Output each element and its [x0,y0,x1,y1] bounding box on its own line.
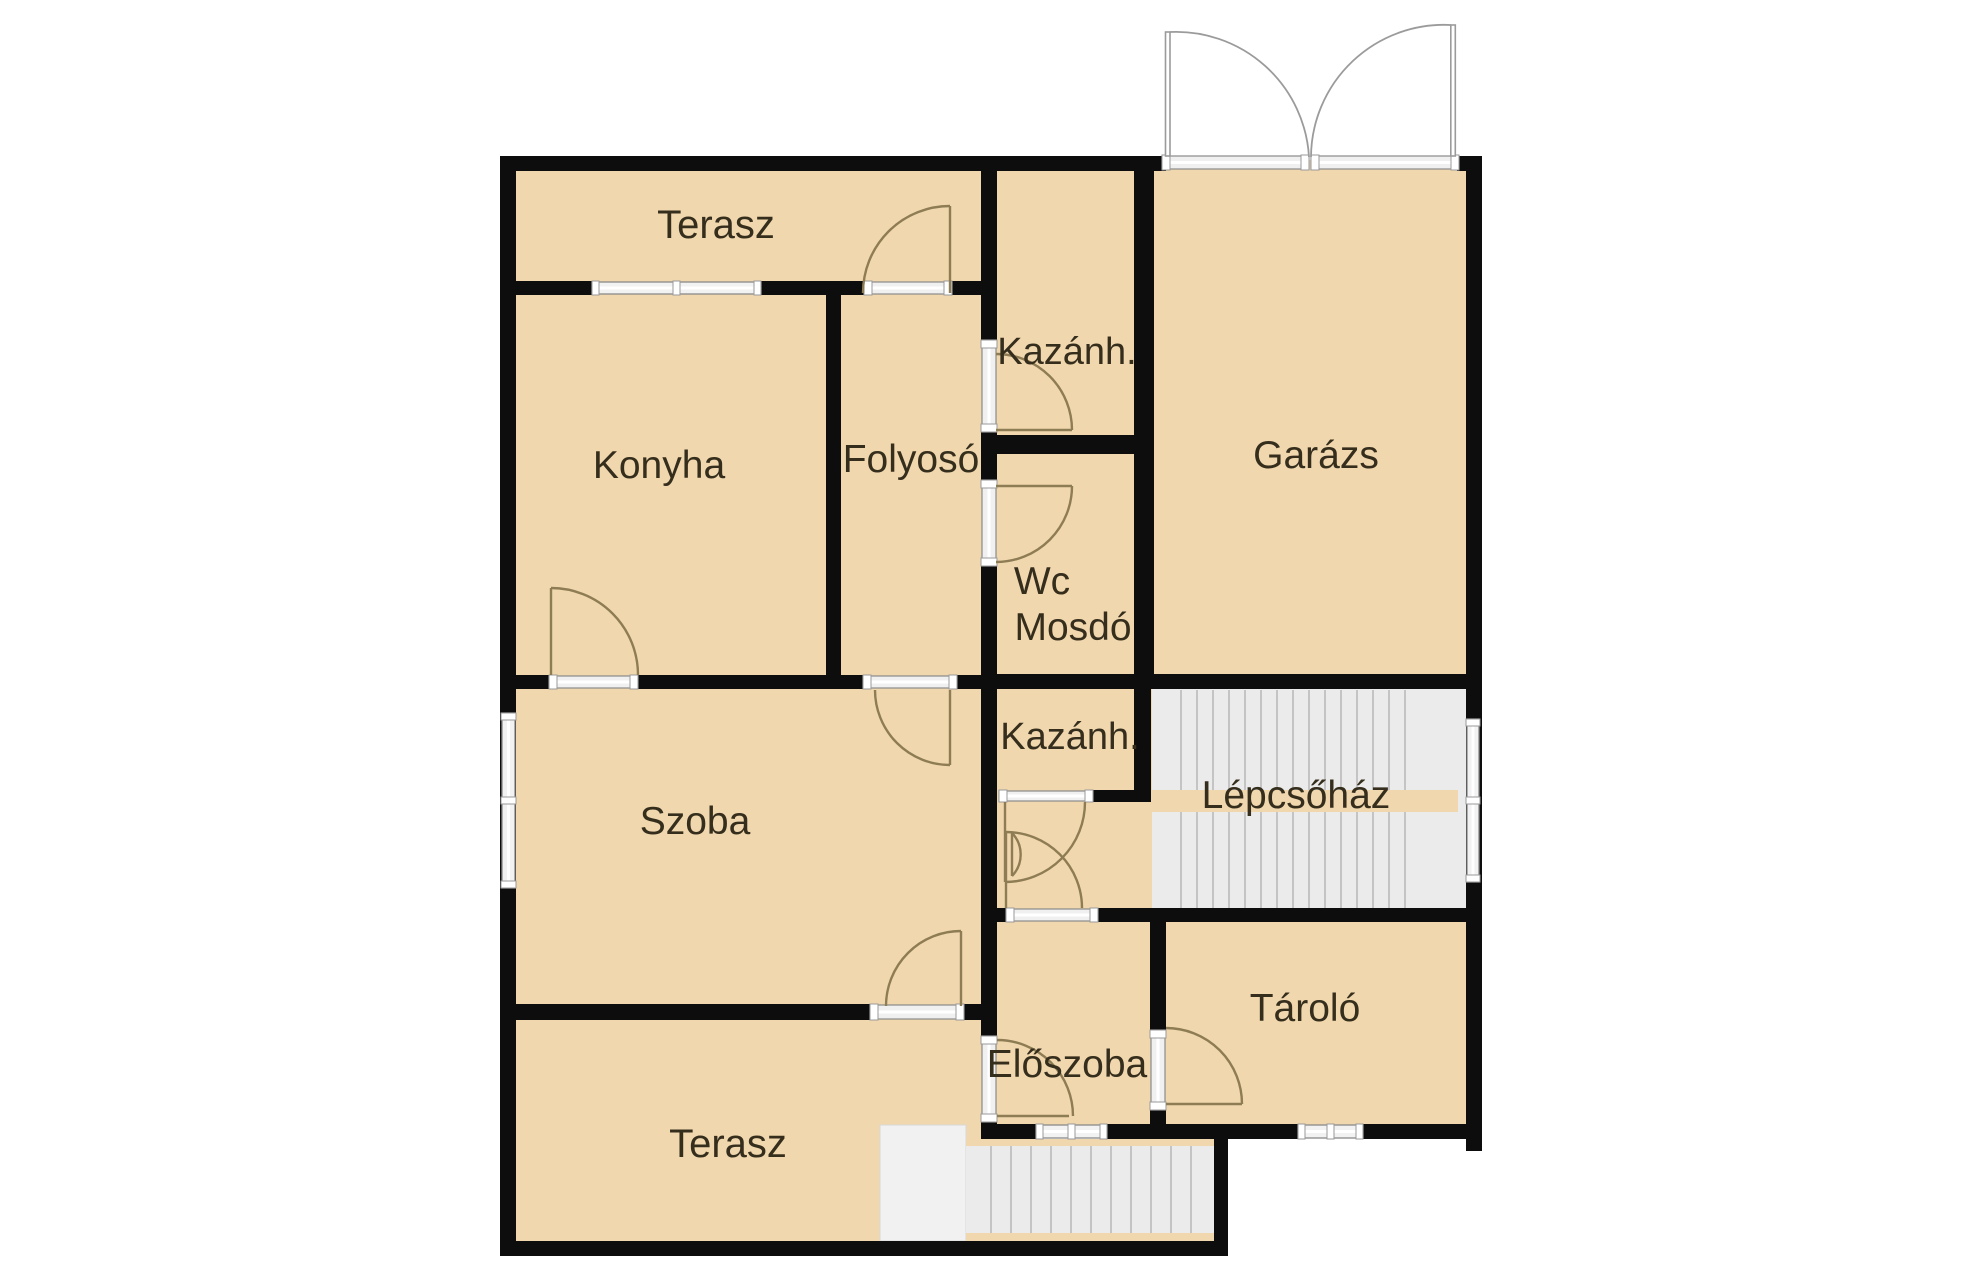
svg-text:Folyosó: Folyosó [843,438,980,481]
svg-text:Garázs: Garázs [1253,434,1379,477]
svg-text:Konyha: Konyha [593,444,726,487]
svg-text:Kazánh.: Kazánh. [997,331,1136,373]
svg-text:Lépcsőház: Lépcsőház [1202,774,1391,817]
svg-text:Terasz: Terasz [669,1122,787,1166]
svg-text:Wc: Wc [1014,560,1070,603]
svg-text:Kazánh.: Kazánh. [1000,716,1139,758]
svg-text:Mosdó: Mosdó [1014,606,1131,649]
svg-text:Tároló: Tároló [1250,987,1361,1030]
svg-text:Szoba: Szoba [640,800,751,843]
svg-text:Előszoba: Előszoba [987,1043,1148,1086]
svg-text:Terasz: Terasz [657,203,775,247]
